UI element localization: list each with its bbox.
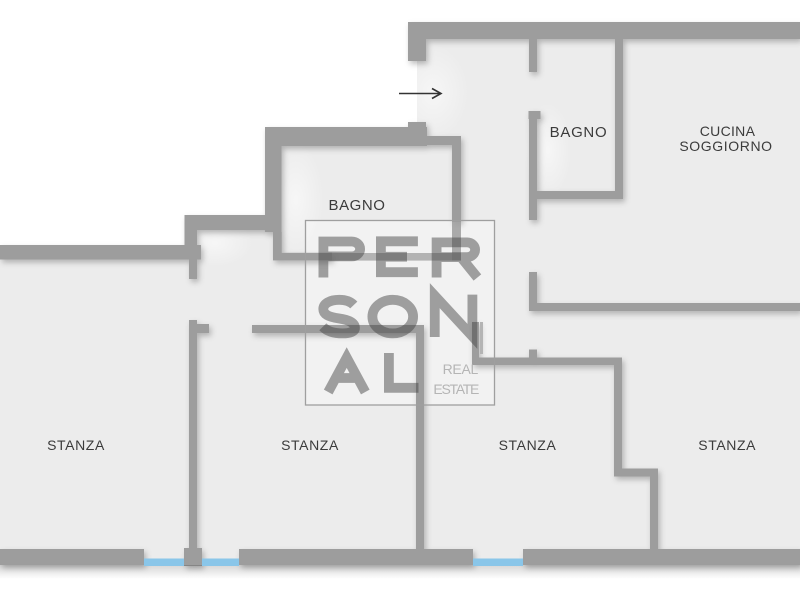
svg-text:ESTATE: ESTATE <box>433 381 479 397</box>
svg-text:BAGNO: BAGNO <box>329 197 386 214</box>
svg-text:STANZA: STANZA <box>281 437 339 453</box>
svg-text:STANZA: STANZA <box>47 437 105 453</box>
svg-text:STANZA: STANZA <box>698 437 756 453</box>
svg-text:REAL: REAL <box>443 361 479 377</box>
svg-text:CUCINA: CUCINA <box>700 123 756 139</box>
svg-text:STANZA: STANZA <box>499 437 557 453</box>
svg-text:SOGGIORNO: SOGGIORNO <box>679 138 772 154</box>
svg-text:BAGNO: BAGNO <box>550 124 608 141</box>
